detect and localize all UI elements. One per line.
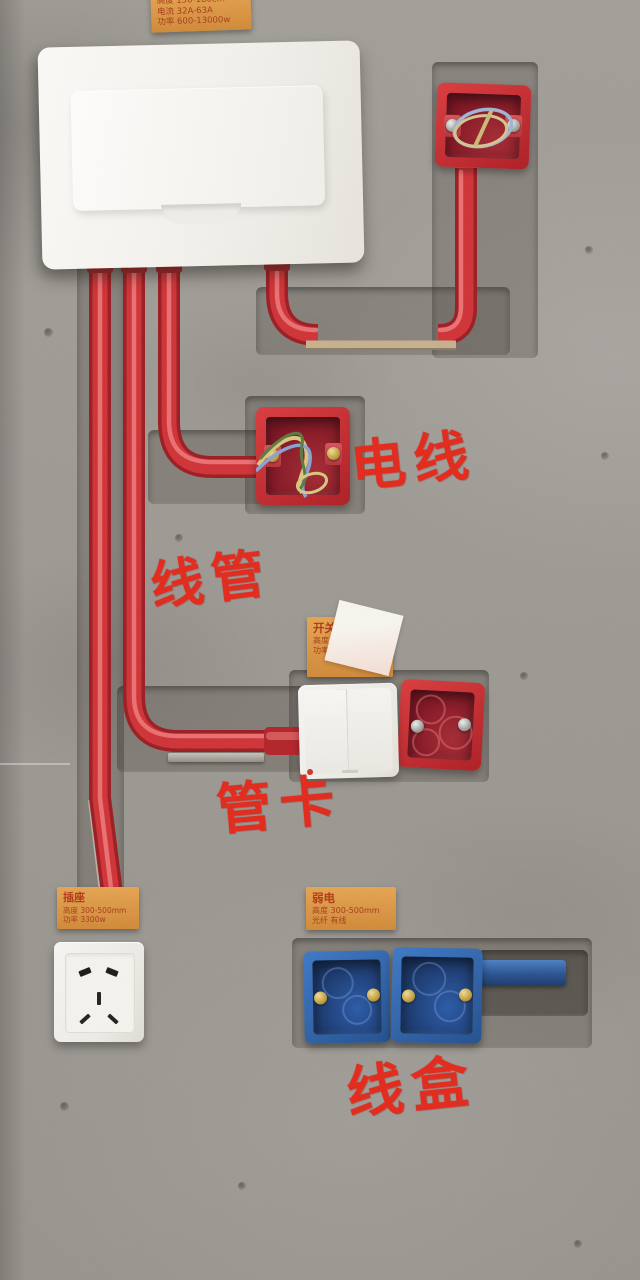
pipe-clamp	[168, 753, 264, 762]
junction-box-blue-left	[303, 950, 391, 1043]
weak-current-title: 弱电	[312, 891, 390, 905]
weak-current-height: 高度 300-500mm	[312, 906, 390, 916]
wire-loop	[435, 82, 532, 169]
wall-tie-hole	[574, 1240, 582, 1248]
wall-tie-hole	[44, 328, 53, 337]
wall-tie-hole	[60, 1102, 69, 1111]
panel-spec-label: 高度 150-180cm 电流 32A-63A 功率 600-13000w	[150, 0, 251, 33]
conduit-annotation: 线管	[146, 531, 276, 621]
wall-chase-left-vertical	[77, 262, 124, 894]
junction-box-top-right	[435, 82, 532, 169]
wall-tie-hole	[238, 1182, 246, 1190]
distribution-box-notch[interactable]	[161, 203, 241, 225]
socket-spec-power: 功率 3300w	[63, 915, 133, 924]
wall-tie-hole	[585, 246, 593, 254]
concrete-wall: 高度 150-180cm 电流 32A-63A 功率 600-13000w 开	[0, 0, 640, 1280]
junction-box-blue-right	[391, 947, 483, 1044]
switch-rocker-right[interactable]	[348, 688, 393, 773]
socket-spec-height: 高度 300-500mm	[63, 906, 133, 915]
clamp-annotation: 管卡	[213, 755, 346, 846]
box-annotation: 线盒	[342, 1035, 480, 1130]
paper-sticker	[324, 600, 403, 676]
outlet-slot-earth	[97, 992, 101, 1005]
power-outlet[interactable]	[54, 942, 144, 1042]
panel-spec-power: 功率 600-13000w	[157, 15, 245, 29]
wall-tie-hole	[601, 452, 609, 460]
switch-spec-label: 开关 高度 1300mm 功率 1500W	[307, 617, 393, 677]
socket-spec-label: 插座 高度 300-500mm 功率 3300w	[57, 887, 139, 929]
weak-current-media: 光纤 有线	[312, 916, 390, 926]
wall-tie-hole	[520, 672, 528, 680]
distribution-box	[38, 40, 365, 269]
blue-conduit-stub	[478, 960, 566, 986]
wire-loop	[256, 407, 350, 505]
socket-spec-title: 插座	[63, 891, 133, 905]
wall-seam	[0, 763, 70, 765]
wire-annotation: 电线	[346, 410, 480, 503]
junction-box-middle	[256, 407, 350, 505]
weak-current-spec-label: 弱电 高度 300-500mm 光纤 有线	[306, 887, 396, 930]
junction-box-empty-red	[397, 679, 485, 771]
switch-brand-mark	[342, 770, 358, 773]
distribution-box-lid[interactable]	[71, 85, 326, 211]
